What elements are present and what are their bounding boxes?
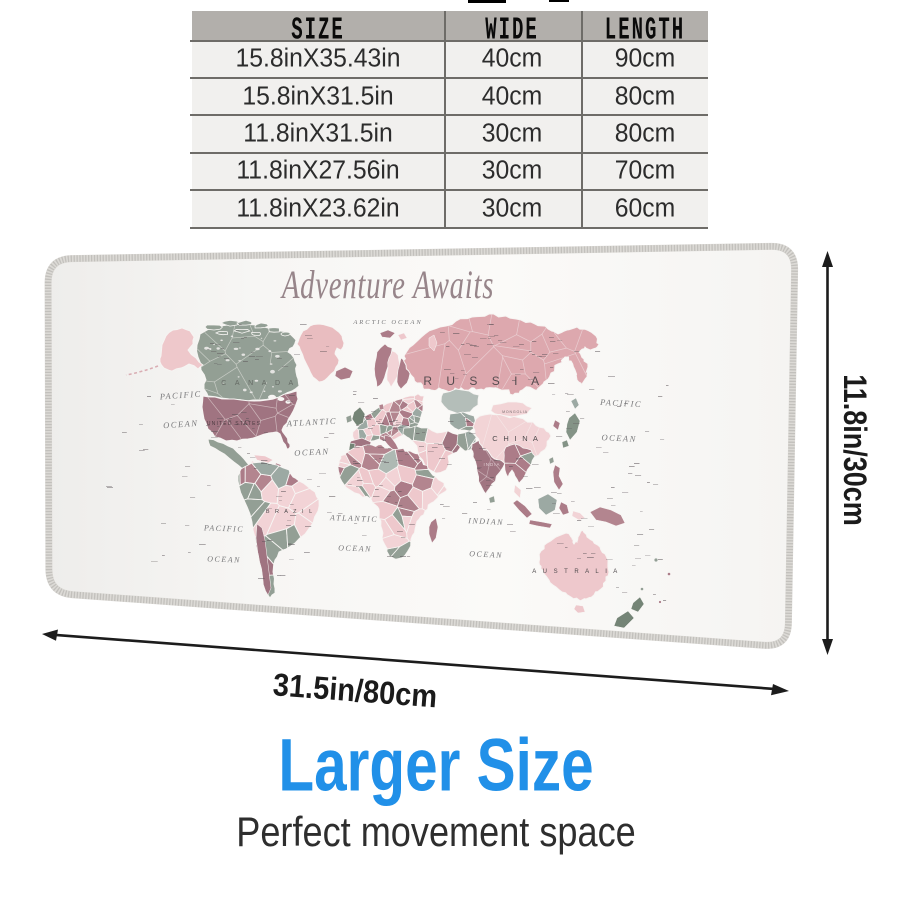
svg-text:R U S S I A: R U S S I A (423, 374, 544, 388)
svg-text:C A N A D A: C A N A D A (221, 380, 296, 387)
svg-text:OCEAN: OCEAN (294, 446, 330, 458)
svg-text:B R A Z I L: B R A Z I L (266, 509, 314, 515)
svg-text:Adventure Awaits: Adventure Awaits (280, 262, 494, 307)
svg-text:ARCTIC OCEAN: ARCTIC OCEAN (352, 319, 422, 326)
svg-text:INDIA: INDIA (483, 462, 500, 467)
svg-text:ATLANTIC: ATLANTIC (329, 513, 378, 524)
svg-text:UNITED STATES: UNITED STATES (207, 421, 261, 427)
svg-text:PACIFIC: PACIFIC (203, 523, 244, 533)
svg-text:OCEAN: OCEAN (338, 543, 372, 553)
svg-text:OCEAN: OCEAN (207, 554, 241, 564)
svg-text:MONGOLIA: MONGOLIA (502, 410, 528, 414)
svg-text:OCEAN: OCEAN (469, 549, 503, 560)
svg-text:A U S T R A L I A: A U S T R A L I A (532, 569, 619, 575)
svg-text:INDIAN: INDIAN (467, 516, 504, 527)
svg-text:C H I N A: C H I N A (492, 434, 539, 443)
svg-text:OCEAN: OCEAN (601, 432, 637, 444)
